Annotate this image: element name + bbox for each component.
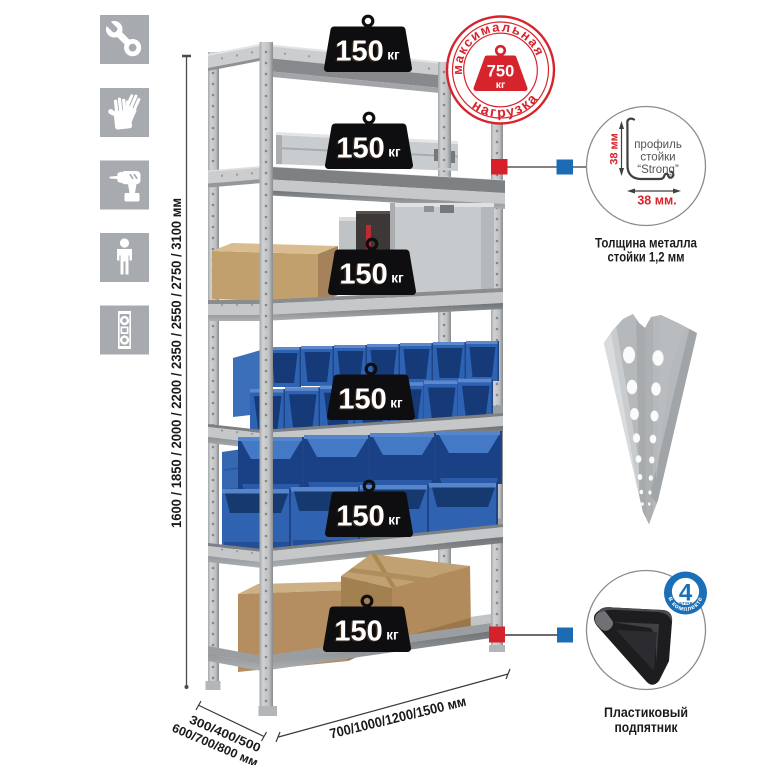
- svg-text:профиль: профиль: [634, 139, 682, 151]
- svg-text:подпятник: подпятник: [615, 720, 678, 735]
- svg-text:38 мм: 38 мм: [609, 133, 621, 165]
- svg-text:750: 750: [487, 63, 515, 81]
- svg-text:“Strong”: “Strong”: [637, 164, 679, 176]
- svg-text:Толщина металла: Толщина металла: [595, 236, 697, 251]
- svg-text:стойки 1,2 мм: стойки 1,2 мм: [608, 250, 685, 265]
- svg-text:штуки: штуки: [679, 601, 693, 606]
- svg-text:кг: кг: [496, 79, 506, 91]
- svg-text:Пластиковый: Пластиковый: [604, 705, 688, 720]
- svg-text:1600 / 1850 / 2000 / 2200 / 23: 1600 / 1850 / 2000 / 2200 / 2350 / 2550 …: [169, 198, 184, 528]
- svg-text:38 мм.: 38 мм.: [637, 194, 676, 208]
- svg-text:стойки: стойки: [640, 152, 675, 164]
